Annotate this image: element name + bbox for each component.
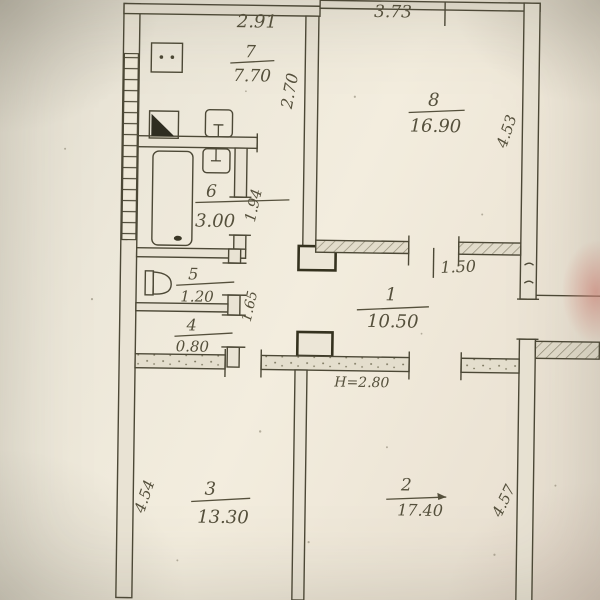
dim-room8-width: 3.73 bbox=[374, 2, 412, 23]
floor-plan-svg: 7 7.70 8 16.90 6 3.00 5 1.20 4 0.80 1 10… bbox=[0, 0, 600, 600]
photographed-floor-plan: 7 7.70 8 16.90 6 3.00 5 1.20 4 0.80 1 10… bbox=[0, 0, 600, 600]
wall-room3-room2 bbox=[292, 370, 307, 600]
room-2-underline bbox=[386, 496, 446, 500]
stairwell-wall-thick bbox=[535, 341, 599, 359]
wall-pillar-lower bbox=[297, 332, 332, 356]
outer-wall-right-upper bbox=[520, 3, 540, 299]
room-3-underline bbox=[191, 498, 250, 503]
window-left bbox=[122, 54, 139, 240]
room-8-area: 16.90 bbox=[410, 116, 462, 138]
bathtub-icon bbox=[152, 151, 193, 246]
washbasin-icon bbox=[203, 149, 230, 173]
plan-drawing: 7 7.70 8 16.90 6 3.00 5 1.20 4 0.80 1 10… bbox=[58, 0, 600, 600]
room-label-2: 2 17.40 bbox=[386, 475, 447, 520]
outer-wall-top-right bbox=[320, 0, 540, 11]
toilet-icon bbox=[145, 271, 171, 295]
wall-corridor-room8-right bbox=[459, 242, 521, 255]
room-6-area: 3.00 bbox=[195, 211, 235, 233]
room-3-number: 3 bbox=[204, 479, 216, 500]
wall-bathroom-right-lower bbox=[234, 235, 246, 249]
room-4-number: 4 bbox=[185, 315, 196, 334]
room-label-8: 8 16.90 bbox=[408, 90, 465, 138]
vent-shaft-icon bbox=[149, 111, 178, 138]
dim-room3-depth: 4.54 bbox=[130, 478, 158, 516]
stove-icon bbox=[151, 43, 182, 72]
note-ceiling-height: H=2.80 bbox=[333, 374, 389, 391]
dim-room8-depth: 4.53 bbox=[492, 113, 520, 151]
wall-corridor-bottom-right bbox=[461, 358, 519, 373]
wall-corridor-room8-left bbox=[316, 240, 409, 253]
outer-wall-right-lower bbox=[516, 339, 536, 600]
dim-room2-depth: 4.57 bbox=[488, 481, 519, 520]
room-label-1: 1 10.50 bbox=[357, 284, 430, 333]
dim-top-width: 2.91 bbox=[236, 11, 277, 33]
room-label-7: 7 7.70 bbox=[230, 42, 275, 87]
kitchen-sink-icon bbox=[205, 110, 232, 137]
room-1-number: 1 bbox=[385, 284, 397, 305]
room-4-area: 0.80 bbox=[176, 337, 210, 355]
room-5-area: 1.20 bbox=[180, 287, 214, 305]
room-5-underline bbox=[176, 281, 234, 286]
room-5-number: 5 bbox=[188, 264, 198, 283]
wall-toilet-right-a bbox=[229, 249, 241, 263]
room-4-underline bbox=[174, 332, 232, 337]
wall-bathroom-right-upper bbox=[234, 148, 247, 197]
room-8-number: 8 bbox=[428, 90, 440, 111]
wall-closet-right bbox=[227, 347, 239, 367]
room-label-3: 3 13.30 bbox=[191, 479, 251, 529]
room-3-area: 13.30 bbox=[197, 507, 249, 529]
room-7-number: 7 bbox=[245, 42, 256, 62]
room-label-5: 5 1.20 bbox=[176, 264, 235, 306]
room-2-arrowhead bbox=[437, 493, 446, 500]
wall-corridor-bottom-mid bbox=[261, 355, 409, 371]
room-2-area: 17.40 bbox=[397, 500, 443, 520]
wall-kitchen-room8 bbox=[303, 16, 319, 246]
room-label-4: 4 0.80 bbox=[174, 315, 233, 356]
outer-wall-top-left bbox=[124, 4, 320, 17]
room-1-area: 10.50 bbox=[367, 311, 419, 333]
wall-corridor-bottom-left bbox=[135, 354, 225, 369]
dim-kitchen-depth: 2.70 bbox=[277, 72, 303, 112]
room-2-number: 2 bbox=[400, 475, 412, 495]
dim-opening-width: 1.50 bbox=[440, 257, 476, 277]
wall-toilet-right-b bbox=[228, 295, 240, 315]
photo-pink-blur bbox=[562, 240, 600, 344]
room-6-number: 6 bbox=[206, 182, 217, 202]
room-7-area: 7.70 bbox=[233, 66, 271, 87]
